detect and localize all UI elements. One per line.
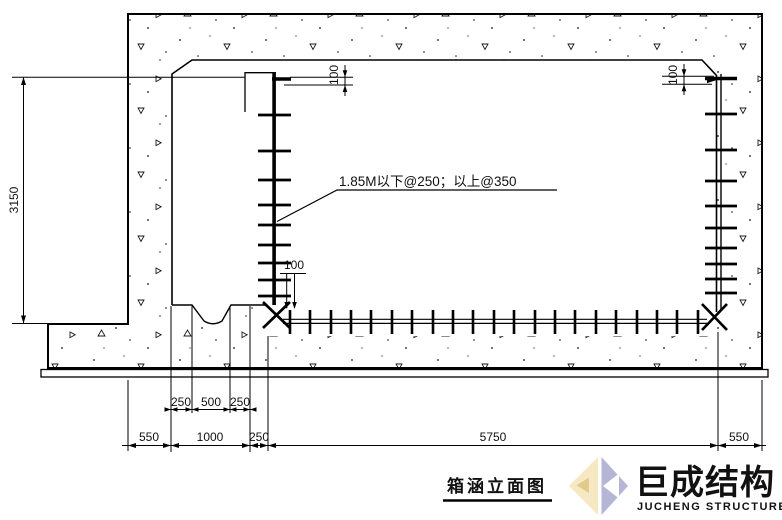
inner-outline bbox=[172, 60, 721, 324]
dimension-lines bbox=[12, 64, 766, 452]
dim-gutter-500: 500 bbox=[201, 395, 221, 409]
concrete-section bbox=[48, 14, 762, 368]
dim-bottom-250: 250 bbox=[249, 430, 269, 444]
rebar-spacing-annotation: 1.85M以下@250；以上@350 bbox=[339, 174, 516, 190]
bedding-layer bbox=[41, 370, 768, 378]
jucheng-logo: 巨成结构 JUCHENG STRUCTURE bbox=[569, 457, 782, 515]
dim-bottom-550-left: 550 bbox=[139, 430, 159, 444]
dim-100-bottom-corner: 100 bbox=[284, 258, 304, 272]
drawing-title: 箱涵立面图 bbox=[447, 476, 547, 496]
dim-bottom-5750: 5750 bbox=[480, 430, 507, 444]
drawing-svg: 3150 100 100 100 250 500 250 550 1000 25… bbox=[0, 0, 782, 520]
annotation-leader-line bbox=[277, 190, 557, 222]
bottom-rebar bbox=[283, 310, 707, 334]
dim-100-top-left: 100 bbox=[327, 65, 341, 85]
culvert-elevation-drawing: 3150 100 100 100 250 500 250 550 1000 25… bbox=[0, 0, 782, 520]
dim-height-3150: 3150 bbox=[7, 186, 21, 213]
dim-gutter-250-left: 250 bbox=[171, 395, 191, 409]
dim-bottom-550-right: 550 bbox=[729, 430, 749, 444]
logo-text-en: JUCHENG STRUCTURE bbox=[637, 501, 782, 513]
logo-text-cn: 巨成结构 bbox=[635, 464, 775, 502]
dim-gutter-250-right: 250 bbox=[230, 395, 250, 409]
dim-bottom-1000: 1000 bbox=[197, 430, 224, 444]
dim-100-top-right: 100 bbox=[666, 65, 680, 85]
